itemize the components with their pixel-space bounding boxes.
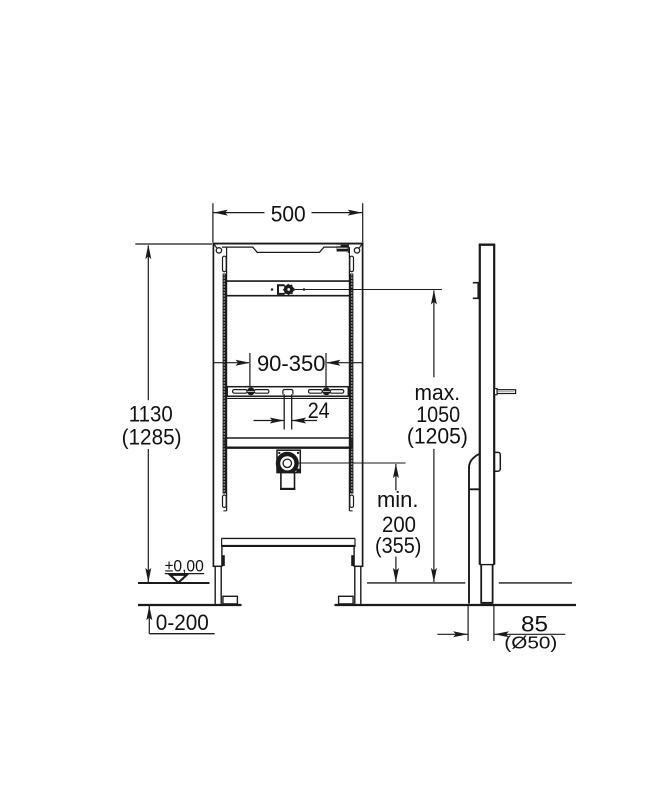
- svg-text:0-200: 0-200: [156, 610, 209, 635]
- svg-text:(355): (355): [375, 533, 422, 558]
- svg-text:90-350: 90-350: [257, 351, 326, 376]
- svg-text:±0,00: ±0,00: [165, 558, 204, 576]
- svg-text:(1285): (1285): [122, 424, 182, 449]
- svg-text:min.: min.: [377, 487, 419, 512]
- svg-text:24: 24: [308, 398, 330, 423]
- svg-text:500: 500: [271, 202, 306, 227]
- svg-text:(Ø50): (Ø50): [504, 632, 557, 652]
- svg-text:(1205): (1205): [407, 424, 468, 449]
- svg-text:1130: 1130: [129, 402, 173, 427]
